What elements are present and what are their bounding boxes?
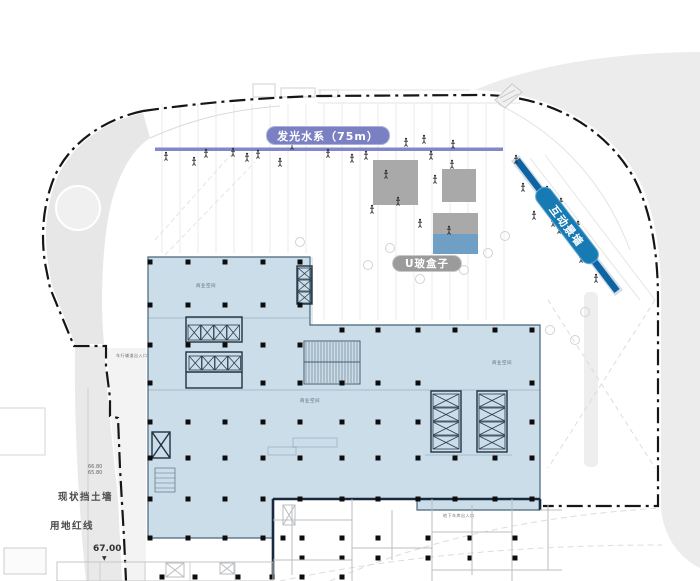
- road-wedge-left: [46, 113, 150, 344]
- column-marker: [223, 456, 228, 461]
- uglass-box-large: [373, 160, 418, 205]
- column-marker: [261, 497, 266, 502]
- column-marker: [148, 343, 153, 348]
- column-marker: [340, 381, 345, 386]
- column-marker: [223, 343, 228, 348]
- column-marker: [416, 456, 421, 461]
- column-marker: [261, 260, 266, 265]
- column-marker: [300, 536, 305, 541]
- column-marker: [513, 556, 518, 561]
- uglass-box-small: [442, 169, 476, 202]
- column-marker: [340, 328, 345, 333]
- person-icon: [422, 135, 426, 144]
- column-marker: [376, 328, 381, 333]
- column-marker: [281, 536, 286, 541]
- tree-icon: [364, 261, 373, 270]
- uglass-box-label: U玻盒子: [392, 255, 462, 272]
- column-marker: [148, 497, 153, 502]
- column-marker: [416, 381, 421, 386]
- column-marker: [148, 381, 153, 386]
- column-marker: [513, 536, 518, 541]
- column-marker: [340, 420, 345, 425]
- column-marker: [261, 456, 266, 461]
- column-marker: [453, 497, 458, 502]
- column-marker: [148, 420, 153, 425]
- person-icon: [278, 158, 282, 167]
- column-marker: [298, 456, 303, 461]
- person-icon: [192, 157, 196, 166]
- column-marker: [340, 575, 345, 580]
- column-marker: [340, 536, 345, 541]
- column-marker: [426, 556, 431, 561]
- column-marker: [298, 343, 303, 348]
- column-marker: [236, 575, 241, 580]
- column-marker: [376, 497, 381, 502]
- column-marker: [300, 575, 305, 580]
- column-marker: [298, 497, 303, 502]
- column-marker: [223, 536, 228, 541]
- entrance-label-south: 地下车库出入口: [443, 513, 475, 519]
- column-marker: [298, 303, 303, 308]
- column-marker: [493, 328, 498, 333]
- space-label-2: 商业空间: [300, 398, 320, 404]
- uglass-boxes: [373, 160, 478, 254]
- road-loop: [56, 186, 100, 230]
- tree-icon: [296, 238, 305, 247]
- entrance-label-west: 车行辅道出入口: [116, 353, 148, 359]
- column-marker: [376, 536, 381, 541]
- column-marker: [298, 381, 303, 386]
- person-icon: [433, 175, 437, 184]
- column-marker: [298, 420, 303, 425]
- column-marker: [530, 456, 535, 461]
- column-marker: [376, 556, 381, 561]
- uglass-box-lower-gray: [433, 213, 478, 234]
- tree-icon: [501, 232, 510, 241]
- column-marker: [376, 420, 381, 425]
- parking-strip: [584, 292, 598, 467]
- tree-icon: [416, 275, 425, 284]
- column-marker: [186, 420, 191, 425]
- column-marker: [160, 575, 165, 580]
- column-marker: [148, 536, 153, 541]
- column-marker: [416, 328, 421, 333]
- column-marker: [186, 303, 191, 308]
- column-marker: [530, 328, 535, 333]
- tree-icon: [571, 336, 580, 345]
- person-icon: [451, 140, 455, 149]
- person-icon: [364, 151, 368, 160]
- column-marker: [453, 328, 458, 333]
- elevation-value: 67.00: [93, 544, 121, 554]
- red-line-label: 用地红线: [50, 518, 94, 532]
- column-marker: [148, 456, 153, 461]
- column-marker: [426, 536, 431, 541]
- column-marker: [223, 497, 228, 502]
- tree-icon: [546, 326, 555, 335]
- person-icon: [418, 219, 422, 228]
- column-marker: [148, 303, 153, 308]
- column-marker: [530, 381, 535, 386]
- water-feature-line: [155, 148, 503, 152]
- elevation-marker-icon: ▼: [102, 555, 107, 562]
- column-marker: [261, 381, 266, 386]
- column-marker: [376, 381, 381, 386]
- person-icon: [164, 152, 168, 161]
- person-icon: [404, 138, 408, 147]
- column-marker: [223, 420, 228, 425]
- person-icon: [532, 211, 536, 220]
- column-marker: [530, 497, 535, 502]
- person-icon: [594, 274, 598, 283]
- column-marker: [193, 575, 198, 580]
- column-marker: [223, 303, 228, 308]
- space-label-3: 商业空间: [492, 360, 512, 366]
- person-icon: [521, 183, 525, 192]
- column-marker: [261, 343, 266, 348]
- column-marker: [453, 456, 458, 461]
- column-marker: [340, 497, 345, 502]
- column-marker: [416, 420, 421, 425]
- column-marker: [186, 456, 191, 461]
- column-marker: [261, 420, 266, 425]
- column-marker: [376, 456, 381, 461]
- elevation-lower: 65.80: [88, 470, 102, 476]
- person-icon: [450, 160, 454, 169]
- tree-icon: [484, 249, 493, 258]
- uglass-box-lower-blue: [433, 234, 478, 254]
- person-icon: [256, 150, 260, 159]
- column-marker: [298, 260, 303, 265]
- site-plan-canvas: 发光水系（75m） U玻盒子 互动景墙 现状挡土墙 用地红线 67.00 ▼ 6…: [0, 0, 700, 581]
- column-marker: [493, 456, 498, 461]
- person-icon: [370, 205, 374, 214]
- tree-icon: [386, 244, 395, 253]
- column-marker: [223, 260, 228, 265]
- column-marker: [186, 536, 191, 541]
- column-marker: [186, 497, 191, 502]
- elevation-small-values: 66.80 65.80: [88, 464, 102, 476]
- person-icon: [350, 154, 354, 163]
- column-marker: [270, 575, 275, 580]
- column-marker: [186, 260, 191, 265]
- person-icon: [245, 153, 249, 162]
- column-marker: [261, 536, 266, 541]
- retaining-wall-label: 现状挡土墙: [58, 489, 113, 503]
- column-marker: [340, 456, 345, 461]
- column-marker: [530, 420, 535, 425]
- column-marker: [493, 497, 498, 502]
- space-label-1: 商业空间: [196, 283, 216, 289]
- building-heavy-walls: [273, 499, 540, 579]
- water-feature-label: 发光水系（75m）: [266, 126, 390, 145]
- column-marker: [416, 497, 421, 502]
- column-marker: [186, 343, 191, 348]
- column-marker: [148, 260, 153, 265]
- column-marker: [261, 303, 266, 308]
- building-footprint: [148, 257, 540, 538]
